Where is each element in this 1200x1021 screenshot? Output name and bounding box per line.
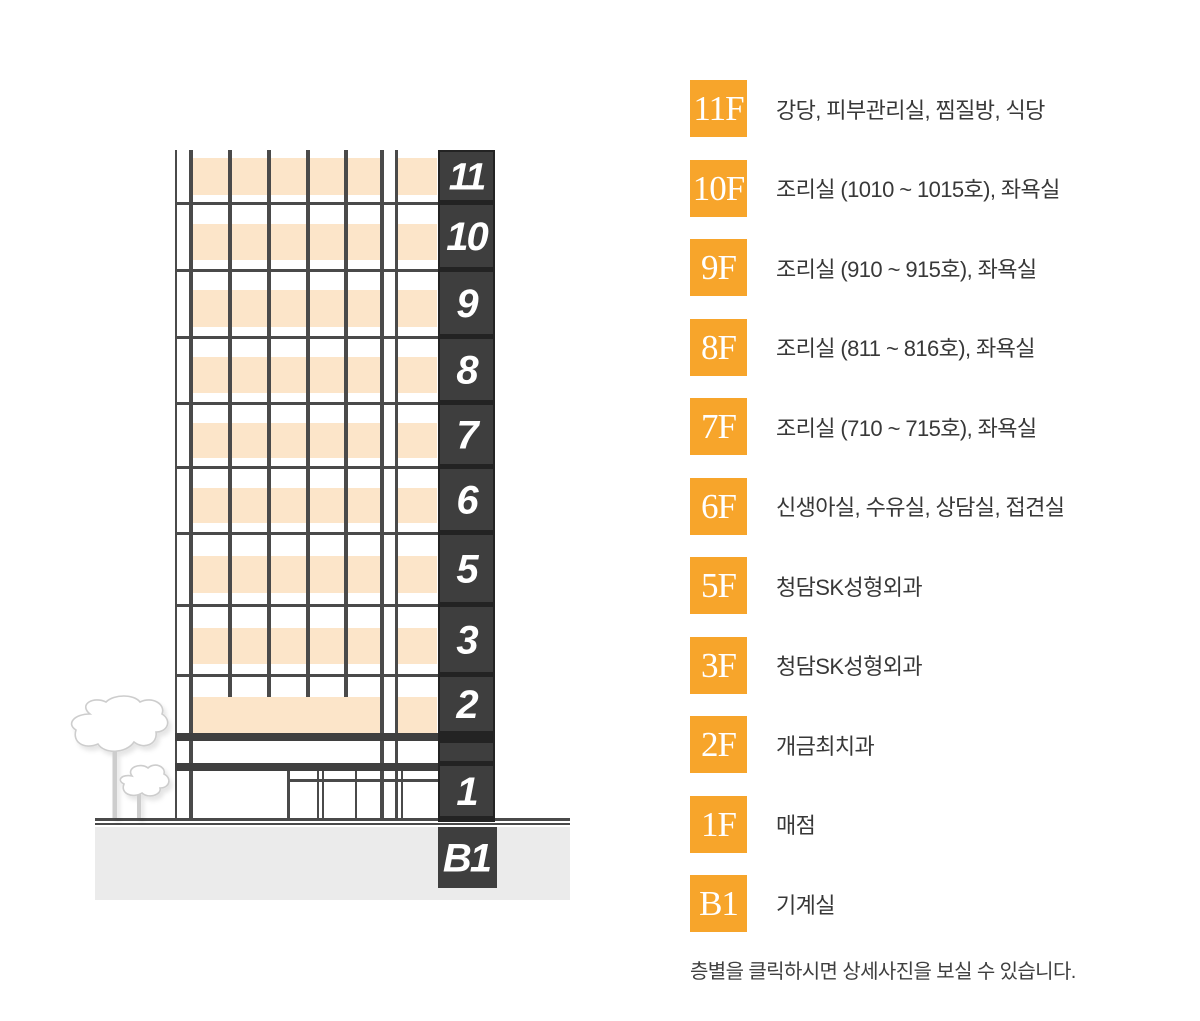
building-floor-11[interactable]: 11 [440,152,493,200]
building-floor-1[interactable]: 1 [440,766,493,816]
building-floor-3[interactable]: 3 [440,607,493,672]
floor-desc: 신생아실, 수유실, 상담실, 접견실 [776,490,1064,522]
building-floor-2[interactable]: 2 [440,677,493,731]
building-floor-10[interactable]: 10 [440,205,493,267]
floor-number[interactable]: 6 [456,479,479,523]
legend-row-10F[interactable]: 10F 조리실 (1010 ~ 1015호), 좌욕실 [690,160,1076,217]
building-floor-B1[interactable]: B1 [438,827,497,888]
floor-number[interactable]: 5 [456,548,479,592]
storefront [287,771,438,818]
legend-row-11F[interactable]: 11F 강당, 피부관리실, 찜질방, 식당 [690,80,1076,137]
building-floor-7[interactable]: 7 [440,405,493,464]
floor-badge[interactable]: B1 [690,875,747,932]
legend-row-2F[interactable]: 2F 개금최치과 [690,716,1076,773]
floor-legend: 11F 강당, 피부관리실, 찜질방, 식당 10F 조리실 (1010 ~ 1… [690,80,1076,984]
legend-row-9F[interactable]: 9F 조리실 (910 ~ 915호), 좌욕실 [690,239,1076,296]
legend-row-5F[interactable]: 5F 청담SK성형외과 [690,557,1076,614]
floor-desc: 청담SK성형외과 [776,649,922,681]
floor-badge[interactable]: 6F [690,478,747,535]
floor-number[interactable]: 9 [456,282,479,326]
legend-row-B1[interactable]: B1 기계실 [690,875,1076,932]
floor-desc: 개금최치과 [776,729,874,761]
floor-number[interactable]: B1 [443,837,491,881]
building-floor-9[interactable]: 9 [440,272,493,334]
ground [95,818,570,900]
floor-number[interactable]: 1 [456,770,477,814]
building-floor-5[interactable]: 5 [440,535,493,602]
floor-badge[interactable]: 10F [690,160,747,217]
floor-badge[interactable]: 8F [690,319,747,376]
legend-row-1F[interactable]: 1F 매점 [690,796,1076,853]
floor-badge[interactable]: 11F [690,80,747,137]
floor-badge[interactable]: 5F [690,557,747,614]
floor-desc: 매점 [776,808,815,840]
floor-number[interactable]: 2 [455,683,478,727]
floor-desc: 청담SK성형외과 [776,570,922,602]
floor-guide-page: 111098765321B1 11F 강당, 피부관리실, 찜질방, 식당 10… [0,0,1200,1021]
building-floor-6[interactable]: 6 [440,469,493,530]
tree-icon [72,696,169,818]
building-floor-column: 111098765321B1 [438,150,497,888]
building-elevation: 111098765321B1 [0,0,600,1021]
floor-badge[interactable]: 9F [690,239,747,296]
legend-row-8F[interactable]: 8F 조리실 (811 ~ 816호), 좌욕실 [690,319,1076,376]
floor-block [440,743,493,761]
floor-number[interactable]: 3 [456,619,478,663]
legend-row-6F[interactable]: 6F 신생아실, 수유실, 상담실, 접견실 [690,478,1076,535]
floor-badge[interactable]: 3F [690,637,747,694]
legend-row-3F[interactable]: 3F 청담SK성형외과 [690,637,1076,694]
floor-desc: 조리실 (811 ~ 816호), 좌욕실 [776,331,1035,363]
legend-note: 층별을 클릭하시면 상세사진을 보실 수 있습니다. [690,955,1076,984]
floor-badge[interactable]: 1F [690,796,747,853]
building-floor-8[interactable]: 8 [440,339,493,400]
floor-number[interactable]: 11 [449,156,485,198]
floor-badge[interactable]: 2F [690,716,747,773]
floor-desc: 조리실 (710 ~ 715호), 좌욕실 [776,411,1037,443]
floor-desc: 기계실 [776,888,835,920]
floor-number[interactable]: 10 [446,215,488,259]
floor-desc: 조리실 (910 ~ 915호), 좌욕실 [776,252,1037,284]
building-floor-spandrel [440,743,493,761]
legend-row-7F[interactable]: 7F 조리실 (710 ~ 715호), 좌욕실 [690,398,1076,455]
floor-desc: 강당, 피부관리실, 찜질방, 식당 [776,93,1045,125]
floor-badge[interactable]: 7F [690,398,747,455]
floor-legend-rows: 11F 강당, 피부관리실, 찜질방, 식당 10F 조리실 (1010 ~ 1… [690,80,1076,955]
floor-desc: 조리실 (1010 ~ 1015호), 좌욕실 [776,172,1060,204]
floor-number[interactable]: 8 [456,349,479,393]
